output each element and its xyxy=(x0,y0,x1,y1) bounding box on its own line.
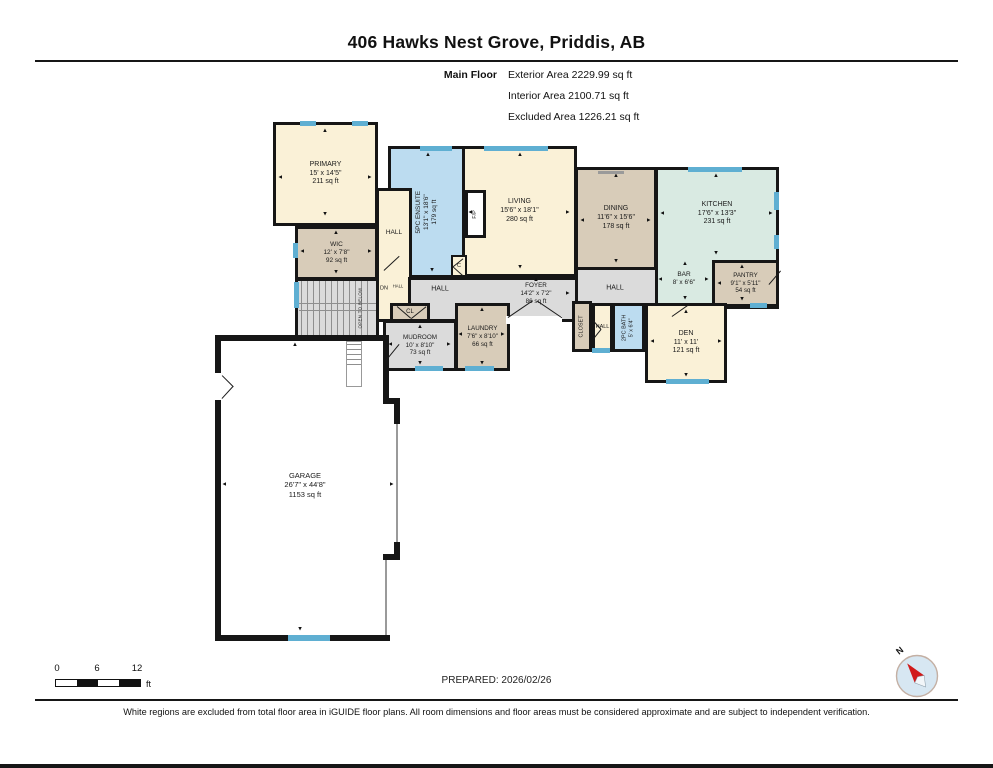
label-text: FOYER xyxy=(520,282,551,290)
dimension-arrow: ▲ xyxy=(533,277,539,283)
dimension-arrow: ▲ xyxy=(564,209,570,215)
dimension-arrow: ▲ xyxy=(417,359,423,365)
label-foyer: FOYER14'2" x 7'2"86 sq ft xyxy=(520,282,551,306)
compass-icon: N xyxy=(888,640,946,702)
room-text: 13'1" x 18'6" xyxy=(423,191,431,234)
compass-n-label: N xyxy=(894,645,905,657)
label-text: HALL xyxy=(431,286,449,295)
dimension-arrow: ▲ xyxy=(613,257,619,263)
dimension-arrow: ▲ xyxy=(682,261,688,267)
disclaimer-text: White regions are excluded from total fl… xyxy=(0,707,993,717)
room-text: 12' x 7'8" xyxy=(323,249,349,257)
stair-tread xyxy=(343,281,344,337)
room-label-kitchen: KITCHEN17'6" x 13'3"231 sq ft xyxy=(698,201,736,227)
room-hall-small: HALL xyxy=(592,303,613,352)
dimension-arrow: ▲ xyxy=(580,217,586,223)
room-text: DEN xyxy=(673,330,700,339)
label-text: HALL xyxy=(393,283,403,288)
dimension-arrow: ▲ xyxy=(739,264,745,270)
label-hall-wic: HALL xyxy=(386,229,402,237)
label-text: DN xyxy=(380,286,388,293)
window xyxy=(352,121,368,126)
window xyxy=(288,635,330,641)
stair-tread xyxy=(331,281,332,337)
dimension-arrow: ▲ xyxy=(322,210,328,216)
dimension-arrow: ▲ xyxy=(429,266,435,272)
room-label-living: LIVING15'6" x 18'1"280 sq ft xyxy=(500,198,538,224)
dimension-arrow: ▲ xyxy=(278,174,284,180)
prepared-date: PREPARED: 2026/02/26 xyxy=(0,675,993,686)
label-text: 8' x 6'6" xyxy=(673,279,696,287)
label-text: GARAGE xyxy=(284,471,325,480)
stair-tread xyxy=(347,364,361,365)
dimension-arrow: ▲ xyxy=(499,331,505,337)
window xyxy=(300,121,316,126)
label-text: HALL xyxy=(386,229,402,237)
room-hall-upper xyxy=(376,188,412,322)
room-text: 5PC ENSUITE xyxy=(415,191,423,234)
room-label-dining: DINING11'6" x 15'6"178 sq ft xyxy=(597,205,635,231)
room-text: LIVING xyxy=(500,198,538,207)
window xyxy=(688,167,742,172)
window xyxy=(592,348,610,353)
label-garage: GARAGE26'7" x 44'8"1153 sq ft xyxy=(284,471,325,499)
window xyxy=(484,146,548,151)
dimension-arrow: ▲ xyxy=(683,371,689,377)
stair-tread xyxy=(367,281,368,337)
dimension-arrow: ▲ xyxy=(703,276,709,282)
room-text: 121 sq ft xyxy=(673,347,700,356)
dimension-arrow: ▲ xyxy=(222,481,228,487)
room-text: CLOSET xyxy=(579,315,586,337)
window xyxy=(293,243,298,258)
scale-tick-12: 12 xyxy=(132,663,143,674)
dimension-arrow: ▲ xyxy=(564,290,570,296)
label-dn-hall: HALL xyxy=(393,283,403,288)
room-text: 66 sq ft xyxy=(467,341,498,349)
footer-divider xyxy=(35,699,958,701)
dimension-arrow: ▲ xyxy=(458,331,464,337)
room-text: 11'6" x 15'6" xyxy=(597,214,635,223)
room-text: 92 sq ft xyxy=(323,257,349,265)
dimension-arrow: ▲ xyxy=(517,263,523,269)
dimension-arrow: ▲ xyxy=(713,249,719,255)
window xyxy=(774,235,779,249)
room-text: 17'6" x 13'3" xyxy=(698,210,736,219)
room-text: PRIMARY xyxy=(309,161,341,170)
scale-tick-6: 6 xyxy=(94,663,99,674)
wall-segment xyxy=(383,335,389,404)
stair-tread xyxy=(347,359,361,360)
label-text: BAR xyxy=(673,271,696,279)
stair-tread xyxy=(347,349,361,350)
dimension-arrow: ▲ xyxy=(682,294,688,300)
room-label-laundry: LAUNDRY7'6" x 8'10"66 sq ft xyxy=(467,325,498,349)
stair-tread xyxy=(319,281,320,337)
dimension-arrow: ▲ xyxy=(322,128,328,134)
room-text: 10' x 8'10" xyxy=(403,342,437,350)
dimension-arrow: ▲ xyxy=(658,276,664,282)
dimension-arrow: ▲ xyxy=(333,230,339,236)
thin-wall-line xyxy=(385,560,387,636)
window xyxy=(750,303,767,308)
room-text: 7'6" x 8'10" xyxy=(467,333,498,341)
dimension-arrow: ▲ xyxy=(425,152,431,158)
room-label-primary: PRIMARY15' x 14'5"211 sq ft xyxy=(309,161,341,187)
dimension-arrow: ▲ xyxy=(683,309,689,315)
room-text: PANTRY xyxy=(730,272,760,280)
wall-segment xyxy=(394,398,400,424)
dimension-arrow: ▲ xyxy=(479,307,485,313)
room-text: 231 sq ft xyxy=(698,218,736,227)
room-label-ensuite: 5PC ENSUITE13'1" x 18'6"179 sq ft xyxy=(415,191,439,234)
window xyxy=(420,146,452,151)
label-dn: DN xyxy=(380,286,388,293)
label-text: 26'7" x 44'8" xyxy=(284,480,325,489)
scale-tick-0: 0 xyxy=(54,663,59,674)
room-text: LAUNDRY xyxy=(467,325,498,333)
floor-plan: 5PC ENSUITE13'1" x 18'6"179 sq ftPRIMARY… xyxy=(0,0,993,768)
dimension-arrow: ▲ xyxy=(297,625,303,631)
label-bar: BAR8' x 6'6" xyxy=(673,271,696,287)
wall-opening xyxy=(506,316,562,324)
thin-wall-line xyxy=(598,171,624,174)
room-label-bath-2pc: 2PC BATH5' x 6'4" xyxy=(622,314,636,341)
stair-tread xyxy=(355,281,356,337)
dimension-arrow: ▲ xyxy=(300,248,306,254)
label-text: 14'2" x 7'2" xyxy=(520,290,551,298)
window xyxy=(294,282,299,308)
dimension-arrow: ▲ xyxy=(713,173,719,179)
dimension-arrow: ▲ xyxy=(388,481,394,487)
room-text: KITCHEN xyxy=(698,201,736,210)
dimension-arrow: ▲ xyxy=(517,152,523,158)
room-label-pantry: PANTRY9'1" x 5'11"54 sq ft xyxy=(730,272,760,295)
door-line xyxy=(222,387,234,400)
room-text: 9'1" x 5'11" xyxy=(730,280,760,288)
room-label-den: DEN11' x 11'121 sq ft xyxy=(673,330,700,356)
room-text: 15'6" x 18'1" xyxy=(500,207,538,216)
dimension-arrow: ▲ xyxy=(479,359,485,365)
dimension-arrow: ▲ xyxy=(650,338,656,344)
thin-wall-line xyxy=(396,424,398,544)
page-bottom-edge xyxy=(0,764,993,768)
dimension-arrow: ▲ xyxy=(417,324,423,330)
label-text: HALL xyxy=(606,285,624,294)
stair-tread xyxy=(349,281,350,337)
dimension-arrow: ▲ xyxy=(468,209,474,215)
wall-segment xyxy=(383,554,400,560)
floor-plan-page: 406 Hawks Nest Grove, Priddis, AB Main F… xyxy=(0,0,993,768)
room-label-wic: WIC12' x 7'8"92 sq ft xyxy=(323,241,349,265)
dimension-arrow: ▲ xyxy=(292,342,298,348)
window xyxy=(666,379,709,384)
room-text: DINING xyxy=(597,205,635,214)
room-closet: CLOSET xyxy=(572,301,592,352)
dimension-arrow: ▲ xyxy=(333,268,339,274)
stair-tread xyxy=(347,344,361,345)
room-text: 11' x 11' xyxy=(673,339,700,348)
dimension-arrow: ▲ xyxy=(445,341,451,347)
dimension-arrow: ▲ xyxy=(366,248,372,254)
dimension-arrow: ▲ xyxy=(660,210,666,216)
dimension-arrow: ▲ xyxy=(645,217,651,223)
label-hall-left: HALL xyxy=(431,286,449,295)
label-open-to-below: OPEN TO BELOW xyxy=(357,287,362,328)
window xyxy=(415,366,443,371)
wall-opening xyxy=(214,373,222,400)
room-text: 179 sq ft xyxy=(432,191,440,234)
dimension-arrow: ▲ xyxy=(717,280,723,286)
label-text: 1153 sq ft xyxy=(284,490,325,499)
stair-rail xyxy=(299,303,376,304)
room-bath-2pc: 2PC BATH5' x 6'4" xyxy=(612,303,645,352)
wall-segment xyxy=(215,335,387,341)
stair-tread xyxy=(347,354,361,355)
dimension-arrow: ▲ xyxy=(716,338,722,344)
room-text: 5' x 6'4" xyxy=(629,314,636,341)
room-text: 178 sq ft xyxy=(597,223,635,232)
room-text: 211 sq ft xyxy=(309,178,341,187)
room-label-mudroom: MUDROOM10' x 8'10"73 sq ft xyxy=(403,334,437,358)
room-text: 15' x 14'5" xyxy=(309,170,341,179)
label-hall-right: HALL xyxy=(606,285,624,294)
room-text: MUDROOM xyxy=(403,334,437,342)
dimension-arrow: ▲ xyxy=(767,210,773,216)
stair-rail xyxy=(299,310,376,311)
room-text: WIC xyxy=(323,241,349,249)
stair-tread xyxy=(325,281,326,337)
room-text: 73 sq ft xyxy=(403,349,437,357)
stair-tread xyxy=(313,281,314,337)
room-text: 280 sq ft xyxy=(500,216,538,225)
dimension-arrow: ▲ xyxy=(366,174,372,180)
window xyxy=(774,192,779,210)
label-text: OPEN TO BELOW xyxy=(357,287,362,328)
dimension-arrow: ▲ xyxy=(739,295,745,301)
room-text: 54 sq ft xyxy=(730,287,760,295)
room-label-closet: CLOSET xyxy=(579,315,586,337)
stair-tread xyxy=(307,281,308,337)
window xyxy=(465,366,494,371)
stair-tread xyxy=(337,281,338,337)
stair-tread xyxy=(301,281,302,337)
